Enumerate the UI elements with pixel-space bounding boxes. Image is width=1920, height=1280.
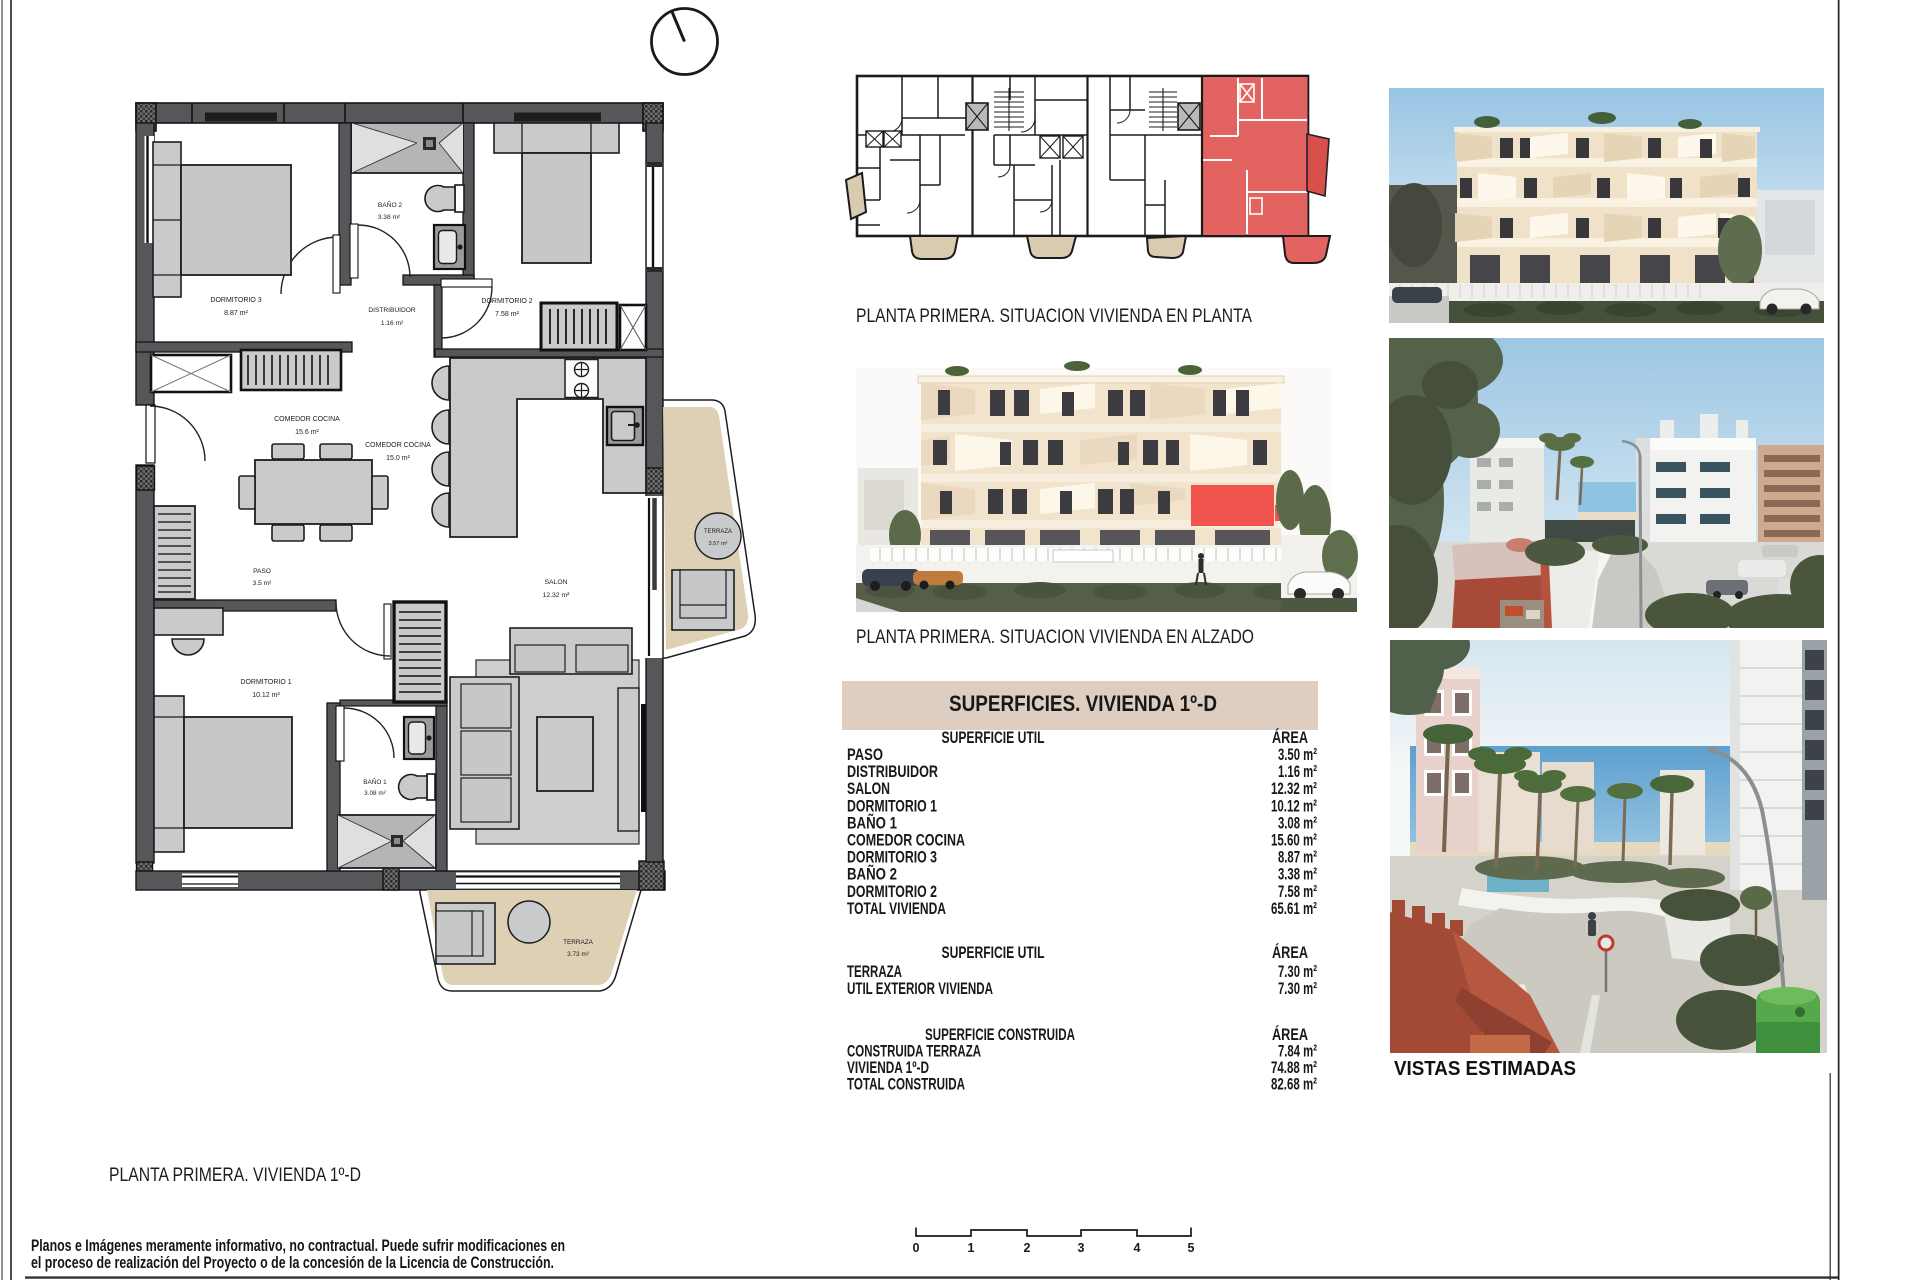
svg-text:2: 2 <box>1024 1241 1031 1255</box>
svg-text:65.61 m²: 65.61 m² <box>1271 899 1317 918</box>
svg-text:SUPERFICIE UTIL: SUPERFICIE UTIL <box>942 943 1045 962</box>
svg-text:3: 3 <box>1078 1241 1085 1255</box>
svg-text:ÁREA: ÁREA <box>1272 943 1308 962</box>
svg-text:15.6 m²: 15.6 m² <box>295 429 319 436</box>
svg-text:15.0 m²: 15.0 m² <box>386 455 410 462</box>
svg-text:3.5 m²: 3.5 m² <box>253 580 272 587</box>
svg-text:DISTRIBUIDOR: DISTRIBUIDOR <box>368 307 415 314</box>
svg-text:TOTAL CONSTRUIDA: TOTAL CONSTRUIDA <box>847 1075 965 1094</box>
svg-text:SUPERFICIE UTIL: SUPERFICIE UTIL <box>942 728 1045 747</box>
svg-text:COMEDOR COCINA: COMEDOR COCINA <box>274 416 340 423</box>
svg-text:SALON: SALON <box>544 579 567 586</box>
svg-text:DORMITORIO 1: DORMITORIO 1 <box>240 679 291 686</box>
svg-text:VISTAS ESTIMADAS: VISTAS ESTIMADAS <box>1394 1058 1576 1080</box>
svg-text:5: 5 <box>1188 1241 1195 1255</box>
svg-text:BAÑO 1: BAÑO 1 <box>847 812 897 832</box>
svg-text:10.12 m²: 10.12 m² <box>252 692 280 699</box>
svg-text:BAÑO 2: BAÑO 2 <box>847 864 897 884</box>
svg-text:3.38 m²: 3.38 m² <box>378 214 401 221</box>
svg-text:1.16 m²: 1.16 m² <box>381 320 404 327</box>
svg-text:PLANTA PRIMERA. VIVIENDA 1º-D: PLANTA PRIMERA. VIVIENDA 1º-D <box>109 1164 361 1186</box>
svg-text:TERRAZA: TERRAZA <box>704 529 732 535</box>
svg-text:UTIL EXTERIOR VIVIENDA: UTIL EXTERIOR VIVIENDA <box>847 979 993 998</box>
svg-text:DORMITORIO 2: DORMITORIO 2 <box>481 298 532 305</box>
svg-text:3.57 m²: 3.57 m² <box>709 541 728 547</box>
svg-text:PASO: PASO <box>253 568 271 575</box>
svg-text:TERRAZA: TERRAZA <box>563 939 594 946</box>
svg-text:82.68 m²: 82.68 m² <box>1271 1075 1317 1094</box>
svg-text:3.08 m²: 3.08 m² <box>364 790 386 797</box>
svg-text:el proceso de realización del: el proceso de realización del Proyecto o… <box>31 1253 554 1272</box>
svg-text:8.87 m²: 8.87 m² <box>224 310 248 317</box>
svg-text:7.58 m²: 7.58 m² <box>495 311 519 318</box>
svg-text:BAÑO 2: BAÑO 2 <box>378 200 403 209</box>
svg-text:COMEDOR COCINA: COMEDOR COCINA <box>365 442 431 449</box>
svg-text:BAÑO 1: BAÑO 1 <box>363 777 387 786</box>
svg-text:PLANTA PRIMERA. SITUACION VIVI: PLANTA PRIMERA. SITUACION VIVIENDA EN AL… <box>856 626 1254 648</box>
svg-text:DORMITORIO 3: DORMITORIO 3 <box>210 297 261 304</box>
svg-text:7.30 m²: 7.30 m² <box>1278 979 1317 998</box>
svg-text:TOTAL VIVIENDA: TOTAL VIVIENDA <box>847 899 946 918</box>
svg-text:4: 4 <box>1134 1241 1141 1255</box>
svg-text:PLANTA PRIMERA. SITUACION VIVI: PLANTA PRIMERA. SITUACION VIVIENDA EN PL… <box>856 305 1252 327</box>
svg-text:3.73 m²: 3.73 m² <box>567 951 589 958</box>
svg-text:12.32 m²: 12.32 m² <box>543 592 571 599</box>
svg-text:0: 0 <box>913 1241 920 1255</box>
svg-text:SUPERFICIES. VIVIENDA 1º-D: SUPERFICIES. VIVIENDA 1º-D <box>949 691 1217 716</box>
svg-text:1: 1 <box>968 1241 975 1255</box>
